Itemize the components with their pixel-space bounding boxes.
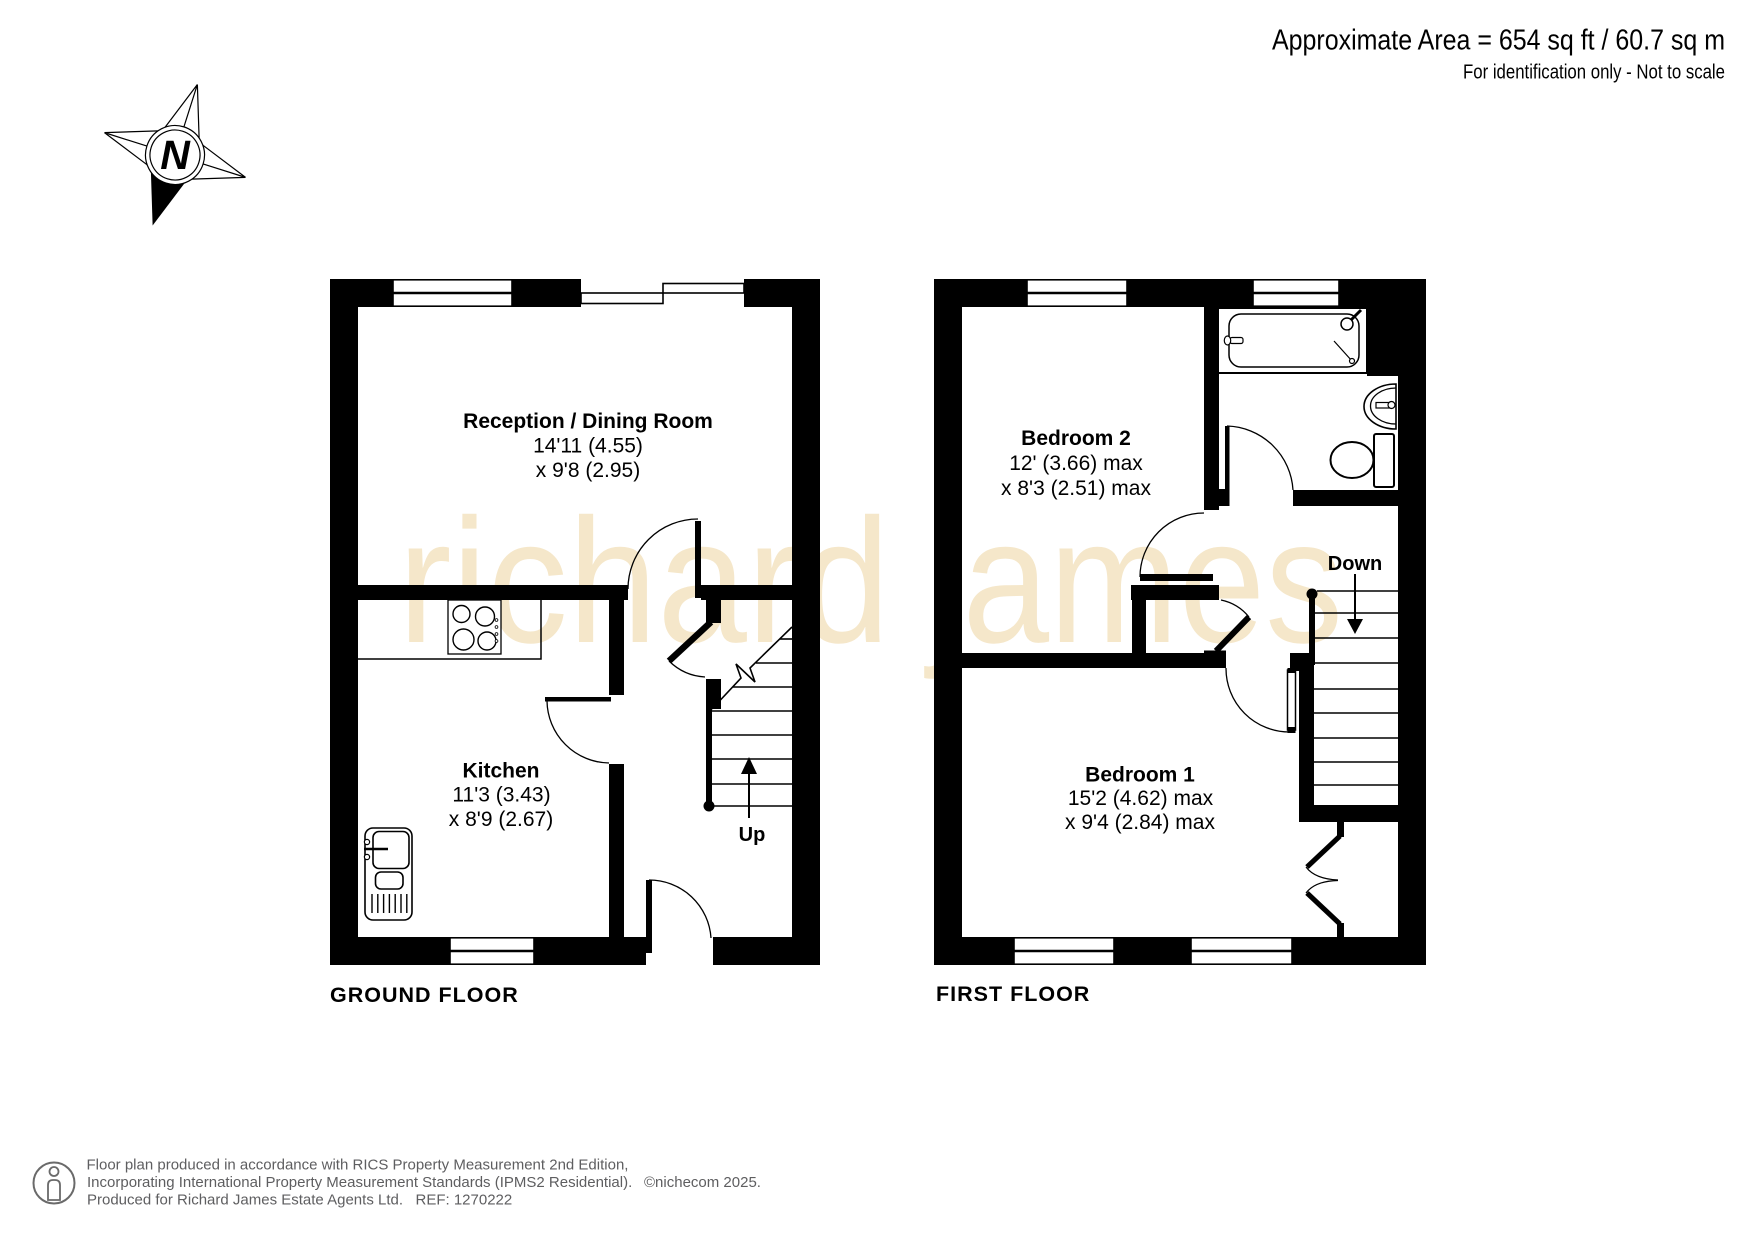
svg-text:14'11 (4.55): 14'11 (4.55) (533, 435, 643, 458)
svg-text:©nichecom 2025.: ©nichecom 2025. (644, 1174, 761, 1191)
svg-text:Down: Down (1328, 553, 1382, 575)
svg-text:Approximate Area = 654 sq ft /: Approximate Area = 654 sq ft / 60.7 sq m (1272, 25, 1725, 57)
svg-text:Floor plan produced in accorda: Floor plan produced in accordance with R… (87, 1157, 629, 1174)
svg-text:Reception / Dining Room: Reception / Dining Room (463, 410, 713, 433)
svg-text:11'3 (3.43): 11'3 (3.43) (452, 784, 550, 807)
svg-text:N: N (160, 132, 191, 178)
svg-text:x 8'9 (2.67): x 8'9 (2.67) (449, 808, 553, 831)
svg-text:Kitchen: Kitchen (462, 760, 539, 783)
svg-text:GROUND FLOOR: GROUND FLOOR (330, 983, 519, 1007)
svg-text:15'2 (4.62) max: 15'2 (4.62) max (1068, 787, 1214, 810)
svg-text:x 9'8 (2.95): x 9'8 (2.95) (536, 459, 640, 482)
svg-text:x 9'4 (2.84) max: x 9'4 (2.84) max (1065, 811, 1215, 834)
svg-text:Bedroom 2: Bedroom 2 (1021, 427, 1131, 450)
svg-text:For identification only - Not: For identification only - Not to scale (1463, 61, 1725, 84)
svg-text:x 8'3 (2.51) max: x 8'3 (2.51) max (1001, 477, 1151, 500)
svg-text:Up: Up (739, 824, 766, 846)
svg-text:Bedroom 1: Bedroom 1 (1085, 764, 1195, 787)
svg-text:FIRST FLOOR: FIRST FLOOR (936, 982, 1090, 1006)
svg-text:Incorporating International Pr: Incorporating International Property Mea… (87, 1174, 632, 1191)
svg-text:Produced for Richard James Est: Produced for Richard James Estate Agents… (87, 1192, 512, 1209)
svg-text:12' (3.66) max: 12' (3.66) max (1009, 452, 1143, 475)
